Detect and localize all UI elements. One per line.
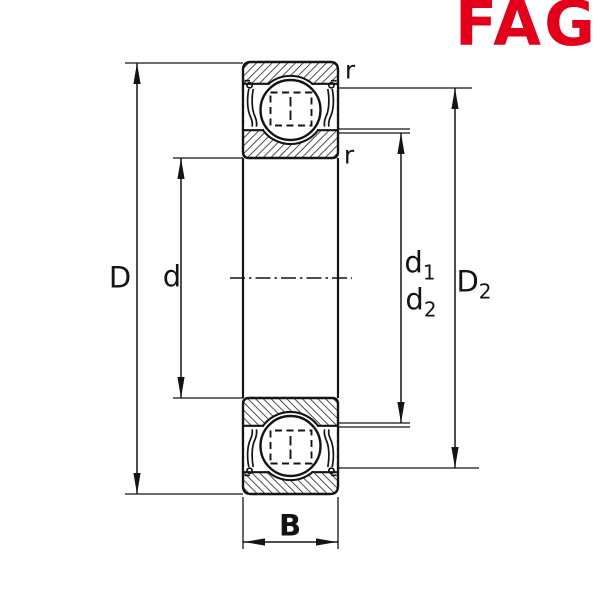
label-D2-subscript: 2 [479,280,492,304]
dimension-d1-d2 [338,129,410,427]
label-d1-subscript: 1 [423,261,436,285]
bearing-section-bottom [243,398,338,494]
dimension-D [125,63,243,494]
label-d2-base: d [405,283,423,317]
label-chamfer-r-inner: r [344,143,354,168]
label-bore-diameter-d: d [163,263,181,292]
label-D2-base: D [456,265,478,299]
label-outer-diameter-D: D [109,264,131,293]
label-d1-base: d [404,246,422,280]
label-recess-diameter-D2: D2 [456,268,491,297]
label-width-B: B [279,512,301,541]
label-d2-subscript: 2 [424,298,437,322]
label-shoulder-diameter-d2: d2 [405,286,436,315]
bearing-section-top [243,62,338,158]
label-chamfer-r-outer: r [345,58,355,83]
technical-drawing-canvas: FAG D d d1 d2 D2 B r r [0,0,600,600]
label-shoulder-diameter-d1: d1 [404,249,435,278]
fag-logo: FAG [455,0,598,55]
